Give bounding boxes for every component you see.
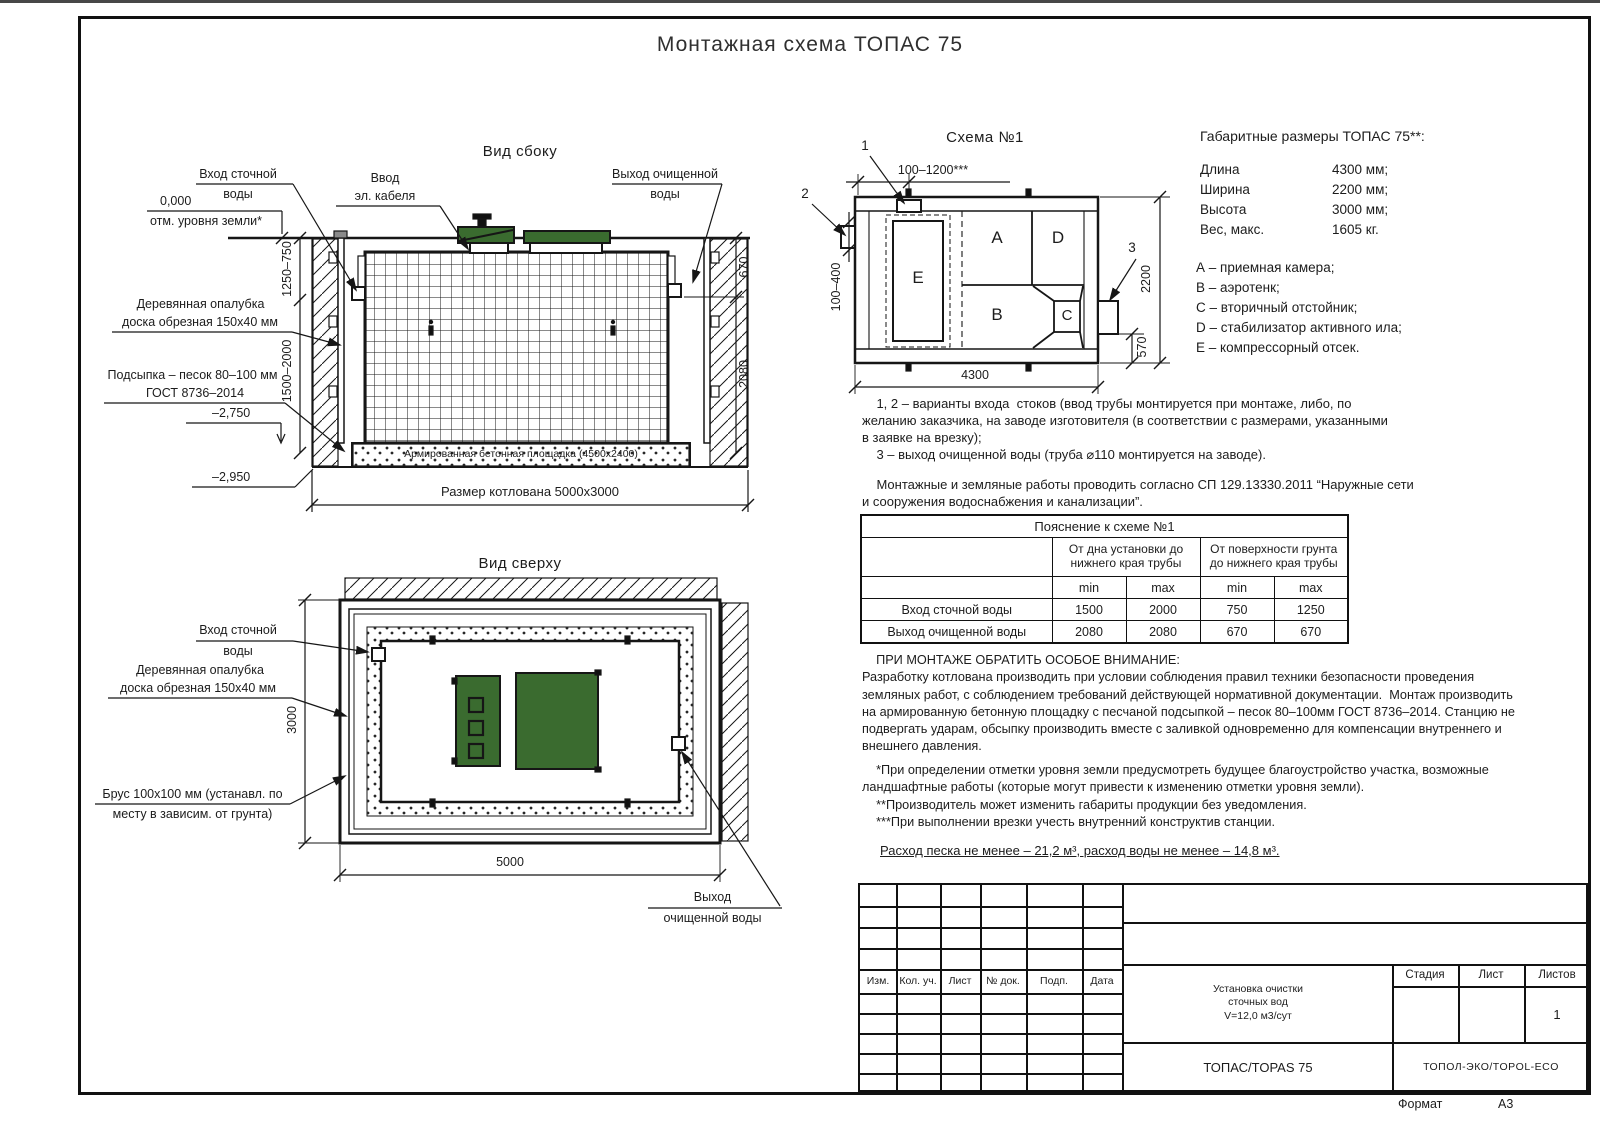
company-name: ТОПОЛ-ЭКО/TOPOL-ECO bbox=[1392, 1042, 1590, 1092]
rev-header-izm: Изм. bbox=[860, 969, 896, 993]
compartment-d-label: D bbox=[1045, 228, 1071, 248]
side-outlet-label-line1: Выход очищенной bbox=[605, 167, 725, 181]
table-title: Пояснение к схеме №1 bbox=[861, 515, 1348, 538]
table-group2-header: От поверхности грунта до нижнего края тр… bbox=[1200, 538, 1348, 577]
dim-100-1200: 100–1200*** bbox=[868, 163, 998, 177]
dim-5000: 5000 bbox=[460, 855, 560, 869]
page-title: Монтажная схема ТОПАС 75 bbox=[610, 33, 1010, 57]
sheet-header: Лист bbox=[1458, 964, 1524, 986]
spec-width-value: 2200 мм; bbox=[1332, 182, 1388, 197]
main-lid-top bbox=[516, 673, 598, 769]
pipe-3 bbox=[1098, 301, 1118, 334]
table-corner-cell bbox=[861, 538, 1052, 577]
outlet-port-side bbox=[668, 284, 681, 297]
stage-header: Стадия bbox=[1392, 964, 1458, 986]
side-formwork-label-line1: Деревянная опалубка bbox=[108, 297, 293, 311]
slab-label: Армированная бетонная площадка (4500х240… bbox=[360, 448, 682, 460]
spec-length-value: 4300 мм; bbox=[1332, 162, 1388, 177]
rev-header-ndok: № док. bbox=[980, 969, 1026, 993]
dim-4300: 4300 bbox=[930, 368, 1020, 382]
inlet-port-top bbox=[372, 648, 385, 661]
spec-length-label: Длина bbox=[1200, 162, 1240, 177]
callout-1: 1 bbox=[857, 138, 873, 153]
dim-670: 670 bbox=[737, 217, 751, 317]
side-outlet-label-line2: воды bbox=[605, 187, 725, 201]
top-formwork-label-line2: доска обрезная 150х40 мм bbox=[98, 681, 298, 695]
note-sp: Монтажные и земляные работы проводить со… bbox=[862, 476, 1482, 510]
dim-2080: 2080 bbox=[737, 324, 751, 424]
rev-header-list: Лист bbox=[940, 969, 980, 993]
table-min1-header: min bbox=[1052, 577, 1126, 599]
table-max2-header: max bbox=[1274, 577, 1348, 599]
bedding-label-line2: ГОСТ 8736–2014 bbox=[120, 386, 270, 400]
dim-1250-750: 1250–750 bbox=[280, 219, 294, 319]
level-minus-2750: –2,750 bbox=[212, 406, 250, 420]
zero-level-label: 0,000 bbox=[160, 194, 191, 208]
pipe-2 bbox=[841, 226, 855, 248]
top-inlet-label-line2: воды bbox=[182, 644, 294, 658]
callout-2: 2 bbox=[797, 186, 813, 201]
legend-a: А – приемная камера; bbox=[1196, 260, 1334, 275]
note-variants: 1, 2 – варианты входа стоков (ввод трубы… bbox=[862, 395, 1482, 463]
dim-3000: 3000 bbox=[285, 670, 299, 770]
pipe-1 bbox=[897, 200, 921, 212]
sheets-header: Листов bbox=[1524, 964, 1590, 986]
side-cable-label-line1: Ввод bbox=[330, 171, 440, 185]
table-max1-header: max bbox=[1126, 577, 1200, 599]
rev-header-podp: Подп. bbox=[1026, 969, 1082, 993]
footnotes-paragraph: *При определении отметки уровня земли пр… bbox=[862, 762, 1552, 831]
top-outlet-label-line1: Выход bbox=[660, 890, 765, 904]
top-outlet-label-line2: очищенной воды bbox=[640, 911, 785, 925]
side-inlet-label-line1: Вход сточной bbox=[182, 167, 294, 181]
legend-e: Е – компрессорный отсек. bbox=[1196, 340, 1359, 355]
dim-570: 570 bbox=[1135, 297, 1149, 397]
drawing-sheet: Монтажная схема ТОПАС 75 Вид сбоку Вход … bbox=[0, 0, 1600, 1131]
side-view-drawing bbox=[104, 184, 754, 512]
bedding-label-line1: Подсыпка – песок 80–100 мм bbox=[95, 368, 290, 382]
compartment-a-label: A bbox=[984, 228, 1010, 248]
side-formwork-label-line2: доска обрезная 150х40 мм bbox=[100, 315, 300, 329]
format-label: Формат bbox=[1398, 1097, 1442, 1111]
inlet-port-side bbox=[352, 287, 365, 300]
top-view-title: Вид сверху bbox=[440, 555, 600, 572]
dim-1500-2000: 1500–2000 bbox=[280, 321, 294, 421]
table-row: Выход очищенной воды 2080 2080 670 670 bbox=[861, 621, 1348, 644]
legend-d: D – стабилизатор активного ила; bbox=[1196, 320, 1402, 335]
spec-height-label: Высота bbox=[1200, 202, 1246, 217]
beam-label-line1: Брус 100х100 мм (устанавл. по bbox=[85, 787, 300, 801]
table-min2-header: min bbox=[1200, 577, 1274, 599]
compartment-c-label: C bbox=[1056, 307, 1078, 324]
level-minus-2950: –2,950 bbox=[212, 470, 250, 484]
beam-label-line2: месту в зависим. от грунта) bbox=[90, 807, 295, 821]
side-inlet-label-line2: воды bbox=[182, 187, 294, 201]
specs-title: Габаритные размеры ТОПАС 75**: bbox=[1200, 128, 1425, 144]
top-formwork-label-line1: Деревянная опалубка bbox=[105, 663, 295, 677]
rev-header-data: Дата bbox=[1082, 969, 1122, 993]
explanation-table: Пояснение к схеме №1 От дна установки до… bbox=[860, 514, 1349, 644]
table-row: Вход сточной воды 1500 2000 750 1250 bbox=[861, 599, 1348, 621]
table-group1-header: От дна установки до нижнего края трубы bbox=[1052, 538, 1200, 577]
spec-height-value: 3000 мм; bbox=[1332, 202, 1388, 217]
format-value: А3 bbox=[1498, 1097, 1513, 1111]
outlet-port-top bbox=[672, 737, 685, 750]
pit-size-label: Размер котлована 5000х3000 bbox=[380, 484, 680, 499]
service-lid-large bbox=[524, 231, 610, 243]
schema-drawing bbox=[812, 156, 1170, 394]
doc-title: Установка очистки сточных вод V=12,0 м3/… bbox=[1124, 966, 1392, 1040]
title-block: Изм. Кол. уч. Лист № док. Подп. Дата Уст… bbox=[858, 883, 1588, 1092]
schema-title: Схема №1 bbox=[915, 129, 1055, 146]
rev-header-koluch: Кол. уч. bbox=[896, 969, 940, 993]
compartment-b-label: B bbox=[984, 305, 1010, 325]
compartment-e-label: E bbox=[905, 268, 931, 288]
side-cable-label-line2: эл. кабеля bbox=[330, 189, 440, 203]
table-empty-cell bbox=[861, 577, 1052, 599]
spec-weight-label: Вес, макс. bbox=[1200, 222, 1264, 237]
spec-weight-value: 1605 кг. bbox=[1332, 222, 1379, 237]
legend-c: С – вторичный отстойник; bbox=[1196, 300, 1357, 315]
legend-b: В – аэротенк; bbox=[1196, 280, 1280, 295]
spec-width-label: Ширина bbox=[1200, 182, 1250, 197]
formwork-cap bbox=[334, 231, 347, 238]
product-name: ТОПАС/TOPAS 75 bbox=[1124, 1042, 1392, 1092]
ground-level-label: отм. уровня земли* bbox=[150, 214, 262, 228]
side-view-title: Вид сбоку bbox=[440, 143, 600, 160]
callout-3: 3 bbox=[1124, 240, 1140, 255]
attention-paragraph: ПРИ МОНТАЖЕ ОБРАТИТЬ ОСОБОЕ ВНИМАНИЕ: Ра… bbox=[862, 652, 1552, 756]
consumption-note: Расход песка не менее – 21,2 м³, расход … bbox=[880, 843, 1280, 858]
sheets-value: 1 bbox=[1524, 986, 1590, 1042]
dim-100-400: 100–400 bbox=[829, 237, 843, 337]
top-inlet-label-line1: Вход сточной bbox=[182, 623, 294, 637]
